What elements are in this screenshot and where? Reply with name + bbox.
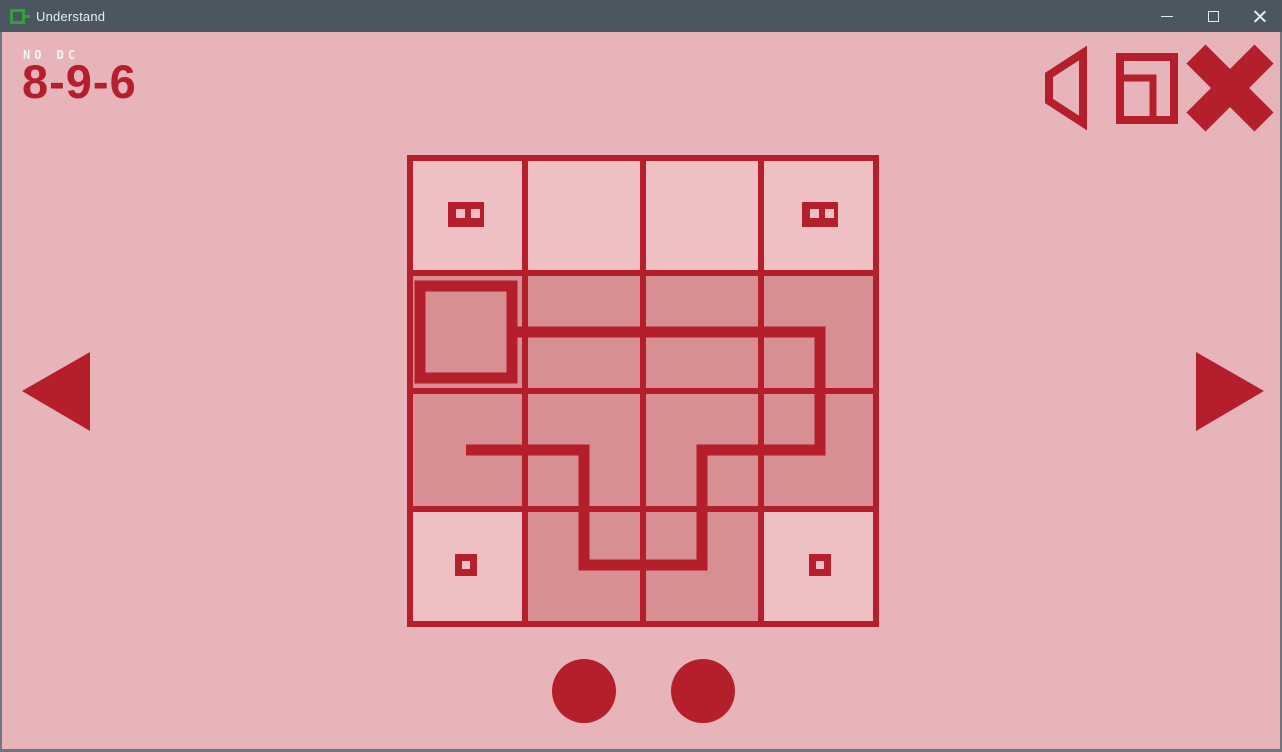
previous-puzzle-arrow[interactable] xyxy=(16,348,100,436)
puzzle-board-svg[interactable] xyxy=(407,155,879,627)
right-triangle-icon xyxy=(1196,352,1264,431)
symbol-single-square xyxy=(809,554,831,576)
titlebar[interactable]: Understand xyxy=(0,0,1282,32)
minimize-button[interactable] xyxy=(1144,0,1190,32)
game-toolbar xyxy=(1037,42,1277,132)
window-controls xyxy=(1144,0,1282,32)
maximize-icon xyxy=(1208,11,1219,22)
maximize-button[interactable] xyxy=(1190,0,1236,32)
window-title: Understand xyxy=(36,9,105,24)
window-mode-icon[interactable] xyxy=(1119,57,1174,120)
game-window: Understand NO DC 8-9-6 xyxy=(0,0,1282,752)
symbol-double-square xyxy=(448,202,484,227)
next-puzzle-arrow[interactable] xyxy=(1190,348,1270,436)
solution-dot xyxy=(671,659,735,723)
speaker-mute-icon[interactable] xyxy=(1049,53,1083,123)
puzzle-id: 8-9-6 xyxy=(22,54,137,109)
puzzle-board[interactable] xyxy=(407,155,879,627)
exit-cross-icon[interactable] xyxy=(1196,54,1264,122)
left-triangle-icon xyxy=(22,352,90,431)
app-icon-tick xyxy=(25,15,30,18)
symbol-single-square xyxy=(455,554,477,576)
solution-dot xyxy=(552,659,616,723)
app-icon xyxy=(10,8,27,25)
close-button[interactable] xyxy=(1236,0,1282,32)
app-icon-square xyxy=(10,9,25,24)
minimize-icon xyxy=(1161,16,1173,17)
close-icon xyxy=(1253,10,1266,23)
solution-dots xyxy=(552,659,735,723)
symbol-double-square xyxy=(802,202,838,227)
